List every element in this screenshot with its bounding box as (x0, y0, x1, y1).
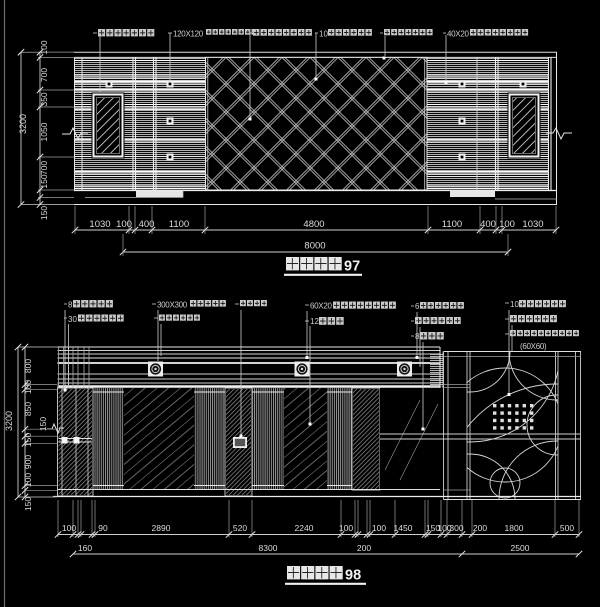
svg-text:100: 100 (62, 523, 76, 533)
svg-text:100: 100 (23, 473, 33, 487)
svg-text:200: 200 (473, 523, 487, 533)
svg-text:100: 100 (39, 40, 49, 54)
svg-text:150: 150 (39, 206, 49, 220)
svg-text:100: 100 (23, 380, 33, 394)
svg-text:1800: 1800 (505, 523, 524, 533)
svg-text:40X20: 40X20 (447, 30, 469, 39)
svg-text:160: 160 (78, 543, 92, 553)
svg-text:8: 8 (415, 332, 420, 341)
svg-text:150: 150 (38, 417, 48, 431)
svg-text:100: 100 (499, 219, 515, 230)
svg-text:3200: 3200 (4, 411, 14, 431)
svg-text:98: 98 (345, 568, 361, 584)
svg-text:700: 700 (39, 68, 49, 82)
svg-text:520: 520 (233, 523, 247, 533)
svg-text:150: 150 (39, 174, 49, 188)
svg-text:90: 90 (98, 523, 108, 533)
svg-text:120X120: 120X120 (173, 30, 204, 39)
svg-text:3200: 3200 (18, 114, 28, 134)
svg-text:1030: 1030 (522, 219, 543, 230)
svg-text:10: 10 (510, 300, 519, 309)
svg-text:6: 6 (415, 302, 420, 311)
svg-text:500: 500 (560, 523, 574, 533)
svg-text:60X20: 60X20 (310, 302, 332, 311)
svg-text:100: 100 (116, 219, 132, 230)
svg-text:900: 900 (23, 455, 33, 469)
svg-text:4800: 4800 (303, 219, 324, 230)
svg-text:400: 400 (480, 219, 496, 230)
svg-text:8300: 8300 (259, 543, 278, 553)
svg-text:350: 350 (39, 92, 49, 106)
svg-text:30: 30 (68, 315, 77, 324)
svg-text:800: 800 (23, 359, 33, 373)
svg-text:8: 8 (68, 301, 73, 310)
svg-text:100: 100 (339, 523, 353, 533)
svg-text:2240: 2240 (295, 523, 314, 533)
svg-text:700: 700 (39, 161, 49, 175)
svg-text:300: 300 (449, 523, 463, 533)
svg-text:150: 150 (23, 433, 33, 447)
svg-text:(60X60): (60X60) (520, 342, 547, 351)
svg-text:2500: 2500 (511, 543, 530, 553)
svg-text:10: 10 (319, 30, 328, 39)
svg-text:1030: 1030 (89, 219, 110, 230)
svg-text:1100: 1100 (169, 219, 189, 230)
svg-text:400: 400 (139, 219, 155, 230)
svg-text:200: 200 (357, 543, 371, 553)
svg-text:8000: 8000 (304, 241, 325, 252)
svg-text:150: 150 (23, 497, 33, 511)
svg-text:850: 850 (23, 402, 33, 416)
svg-text:2890: 2890 (152, 523, 171, 533)
svg-text:1050: 1050 (39, 122, 49, 141)
svg-text:300X300: 300X300 (157, 301, 188, 310)
svg-text:100: 100 (372, 523, 386, 533)
svg-text:1100: 1100 (442, 219, 462, 230)
svg-text:1450: 1450 (394, 523, 413, 533)
svg-text:97: 97 (344, 259, 360, 275)
svg-text:12: 12 (310, 317, 319, 326)
